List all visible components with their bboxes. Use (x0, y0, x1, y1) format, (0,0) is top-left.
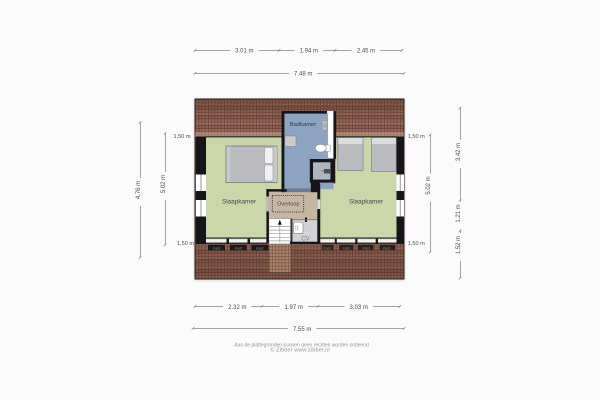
svg-text:Kast: Kast (213, 246, 220, 250)
svg-text:4.76 m: 4.76 m (136, 181, 142, 199)
svg-text:Kast: Kast (383, 246, 390, 250)
svg-text:1,50 m: 1,50 m (408, 241, 425, 247)
svg-text:5.02 m: 5.02 m (161, 175, 167, 193)
svg-text:Slaapkamer: Slaapkamer (349, 198, 384, 205)
svg-text:1.52 m: 1.52 m (456, 236, 462, 254)
svg-text:7.55 m: 7.55 m (293, 327, 311, 333)
svg-text:Kast: Kast (343, 246, 350, 250)
svg-text:1,50 m: 1,50 m (173, 134, 190, 140)
svg-text:1,50 m: 1,50 m (177, 241, 194, 247)
svg-text:3.03 m: 3.03 m (350, 305, 368, 311)
svg-text:1.97 m: 1.97 m (285, 305, 303, 311)
svg-text:1,50 m: 1,50 m (408, 134, 425, 140)
svg-text:2.32 m: 2.32 m (228, 305, 246, 311)
svg-text:Overloop: Overloop (277, 202, 300, 208)
svg-text:Kast: Kast (323, 246, 330, 250)
svg-text:7.48 m: 7.48 m (294, 72, 312, 78)
svg-text:Kast: Kast (235, 246, 242, 250)
svg-text:Kast: Kast (363, 246, 370, 250)
svg-text:5.02 m: 5.02 m (426, 176, 432, 194)
svg-text:1.21 m: 1.21 m (456, 204, 462, 222)
svg-text:1.94 m: 1.94 m (300, 49, 318, 55)
svg-text:Badkamer: Badkamer (290, 122, 316, 128)
svg-text:Kast: Kast (256, 246, 263, 250)
svg-text:3.01 m: 3.01 m (235, 49, 253, 55)
svg-text:CV: CV (301, 236, 309, 242)
svg-text:2.45 m: 2.45 m (357, 49, 375, 55)
svg-text:© Zibber www.zibber.nl: © Zibber www.zibber.nl (270, 347, 329, 354)
svg-text:3.42 m: 3.42 m (456, 143, 462, 161)
svg-text:Slaapkamer: Slaapkamer (222, 198, 257, 205)
